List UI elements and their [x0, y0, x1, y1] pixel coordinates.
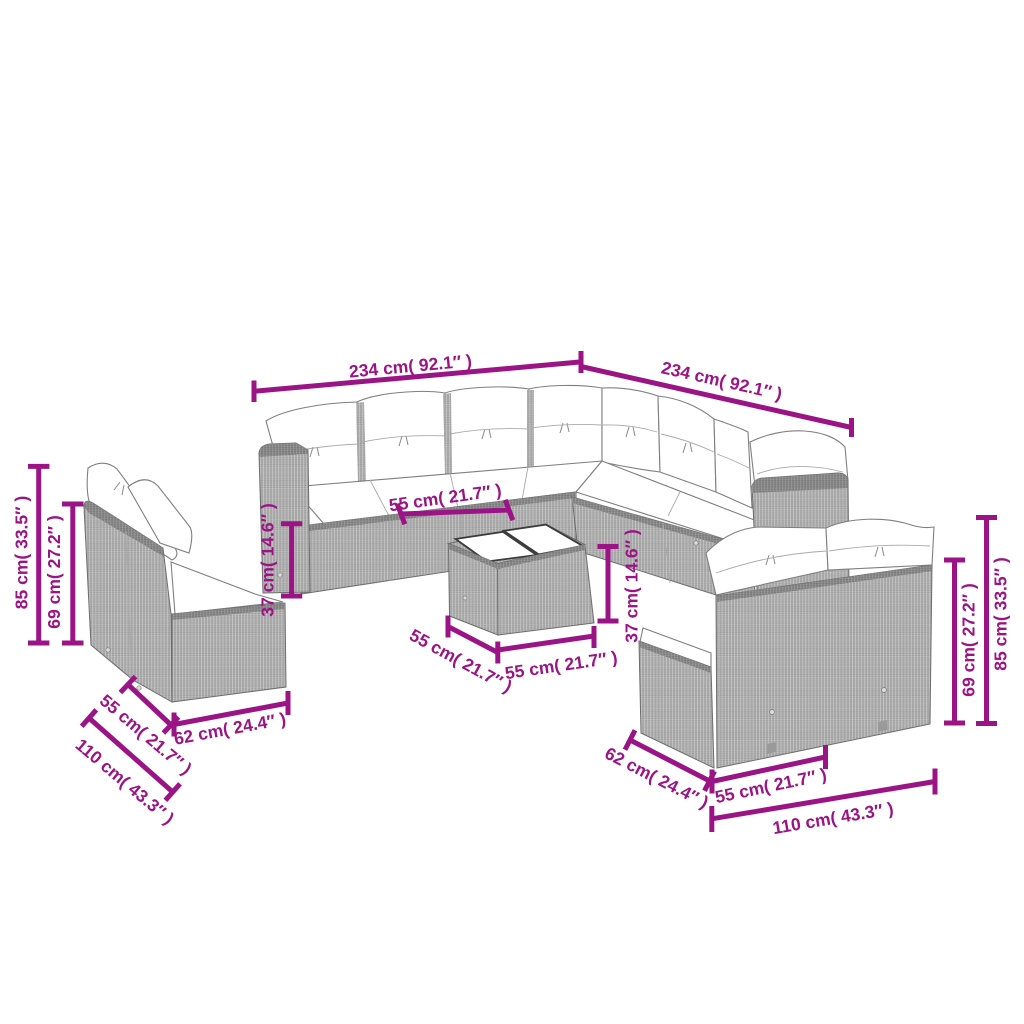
svg-text:85 cm( 33.5″ ): 85 cm( 33.5″ )	[991, 557, 1011, 670]
svg-text:37 cm( 14.6″ ): 37 cm( 14.6″ )	[258, 503, 278, 616]
svg-text:85 cm( 33.5″ ): 85 cm( 33.5″ )	[11, 496, 31, 609]
svg-text:69 cm( 27.2″ ): 69 cm( 27.2″ )	[959, 583, 979, 696]
svg-text:69 cm( 27.2″ ): 69 cm( 27.2″ )	[44, 515, 64, 628]
svg-text:37 cm( 14.6″ ): 37 cm( 14.6″ )	[622, 529, 642, 642]
